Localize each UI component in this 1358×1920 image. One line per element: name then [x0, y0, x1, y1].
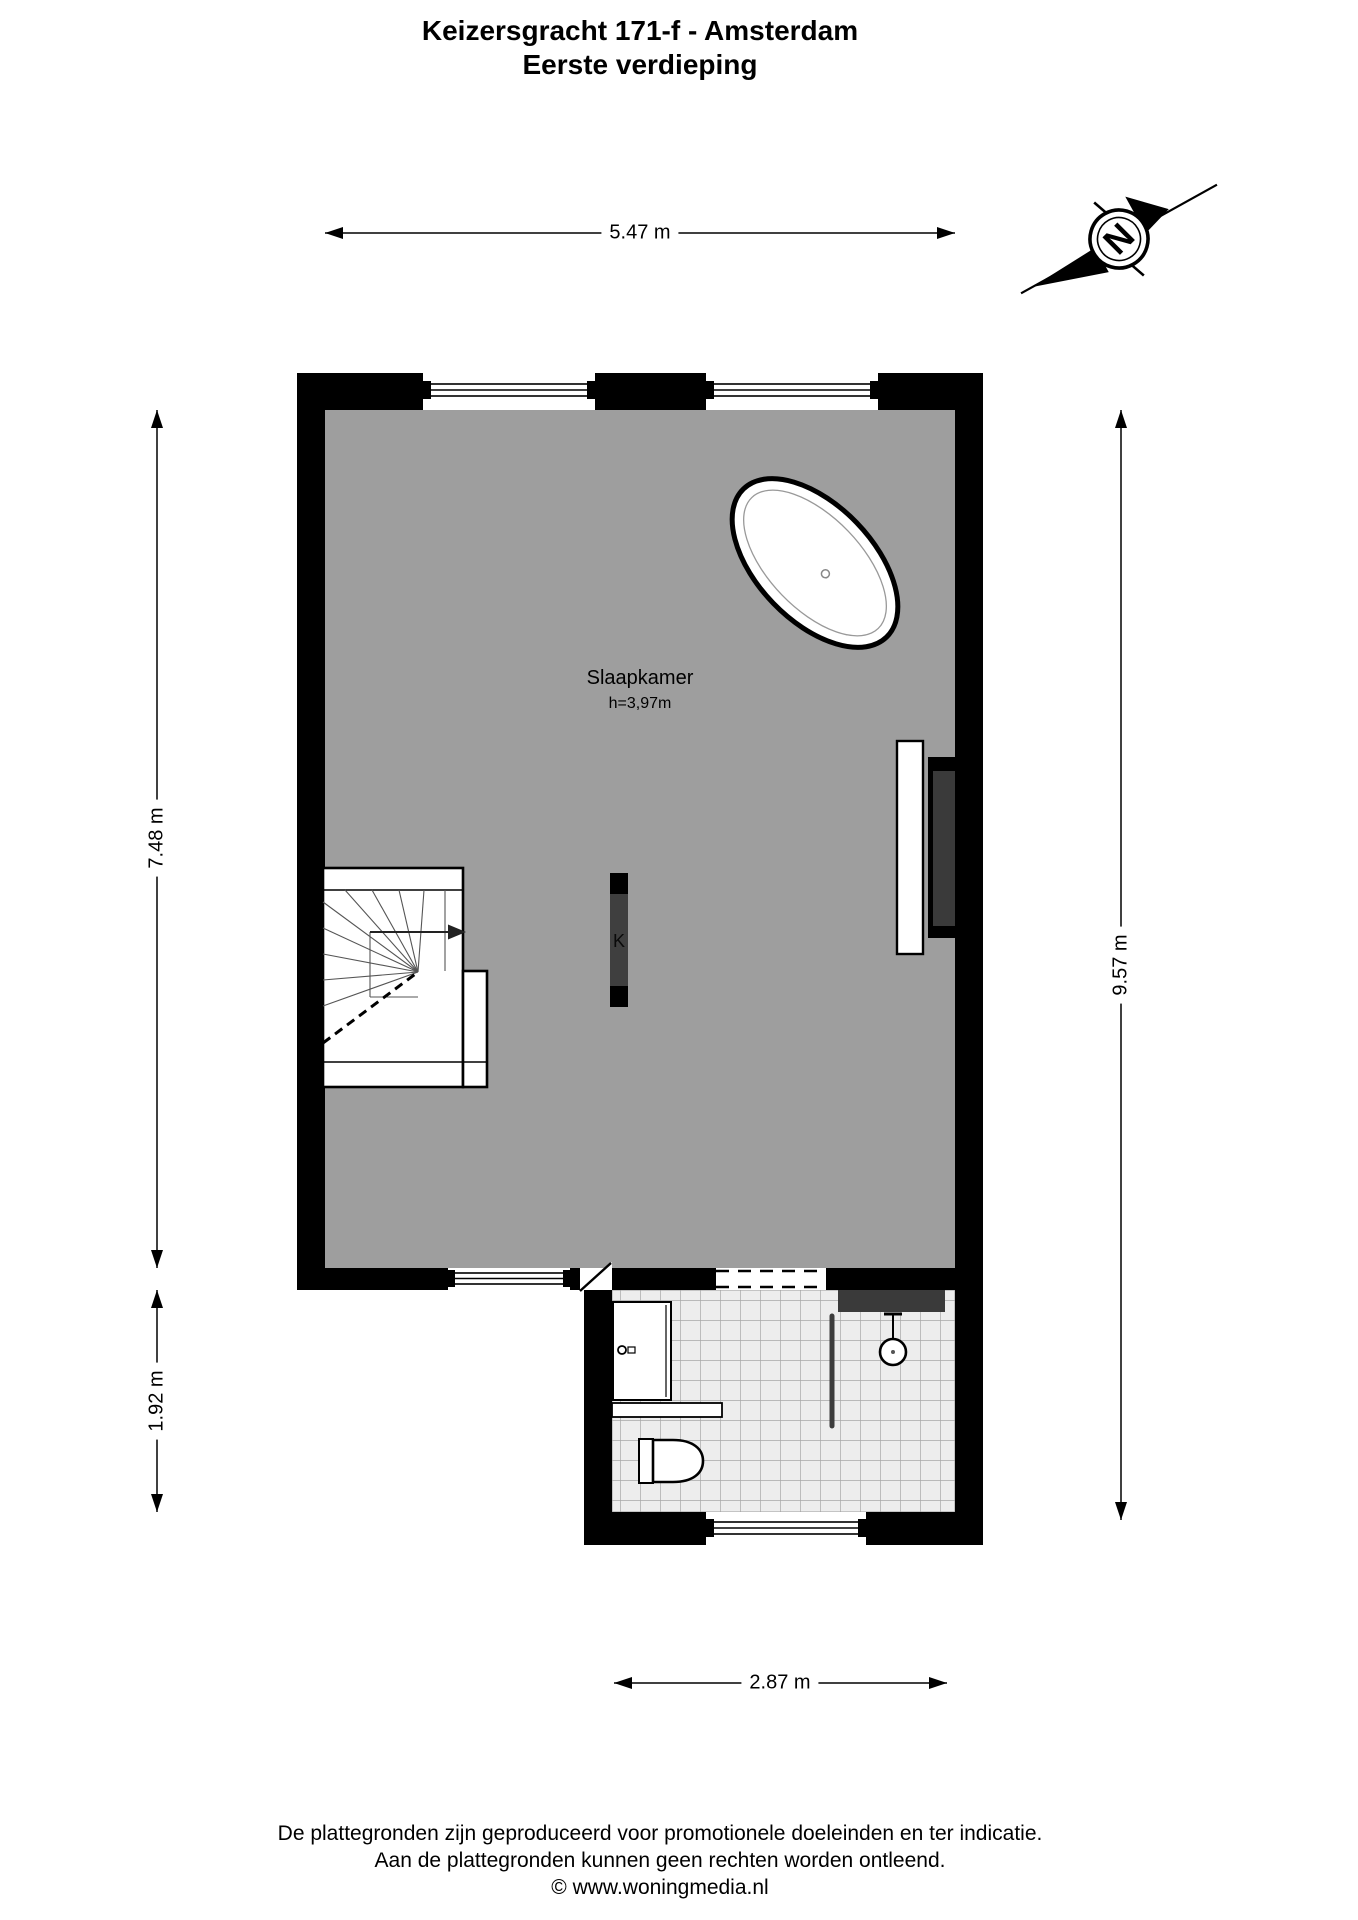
bathroom-counter [612, 1403, 722, 1417]
plan-title: Keizersgracht 171-f - Amsterdam Eerste v… [0, 14, 1280, 82]
disclaimer: De plattegronden zijn geproduceerd voor … [0, 1820, 1320, 1901]
column-k: K [610, 873, 628, 1007]
window-bathroom [706, 1512, 866, 1545]
disclaimer-line1: De plattegronden zijn geproduceerd voor … [0, 1820, 1320, 1847]
window-top-left [423, 373, 595, 410]
dimension-top: 5.47 m [601, 221, 678, 246]
disclaimer-line2: Aan de plattegronden kunnen geen rechten… [0, 1847, 1320, 1874]
window-bottom-left [448, 1268, 570, 1290]
bedroom-ceiling-height: h=3,97m [587, 695, 694, 713]
window-top-right [706, 373, 878, 410]
column-k-label: K [613, 931, 625, 951]
dimension-left-upper: 7.48 m [145, 799, 170, 876]
bedroom-name: Slaapkamer [587, 667, 694, 690]
plan-title-address: Keizersgracht 171-f - Amsterdam [0, 14, 1280, 48]
bedroom-label: Slaapkamer h=3,97m [587, 667, 694, 713]
toilet-icon [639, 1439, 703, 1483]
washbasin [613, 1302, 671, 1400]
floorplan-drawing: K [0, 0, 1358, 1920]
dimension-right: 9.57 m [1109, 926, 1134, 1003]
dimension-bottom: 2.87 m [741, 1671, 818, 1696]
shower-opening [716, 1268, 826, 1290]
plan-title-floor: Eerste verdieping [0, 48, 1280, 82]
dimension-left-lower: 1.92 m [145, 1362, 170, 1439]
copyright: © www.woningmedia.nl [0, 1874, 1320, 1901]
north-arrow-icon: N [1000, 146, 1239, 332]
shower-shelf [838, 1290, 945, 1312]
floorplan-page: K [0, 0, 1358, 1920]
stairs [323, 868, 487, 1087]
